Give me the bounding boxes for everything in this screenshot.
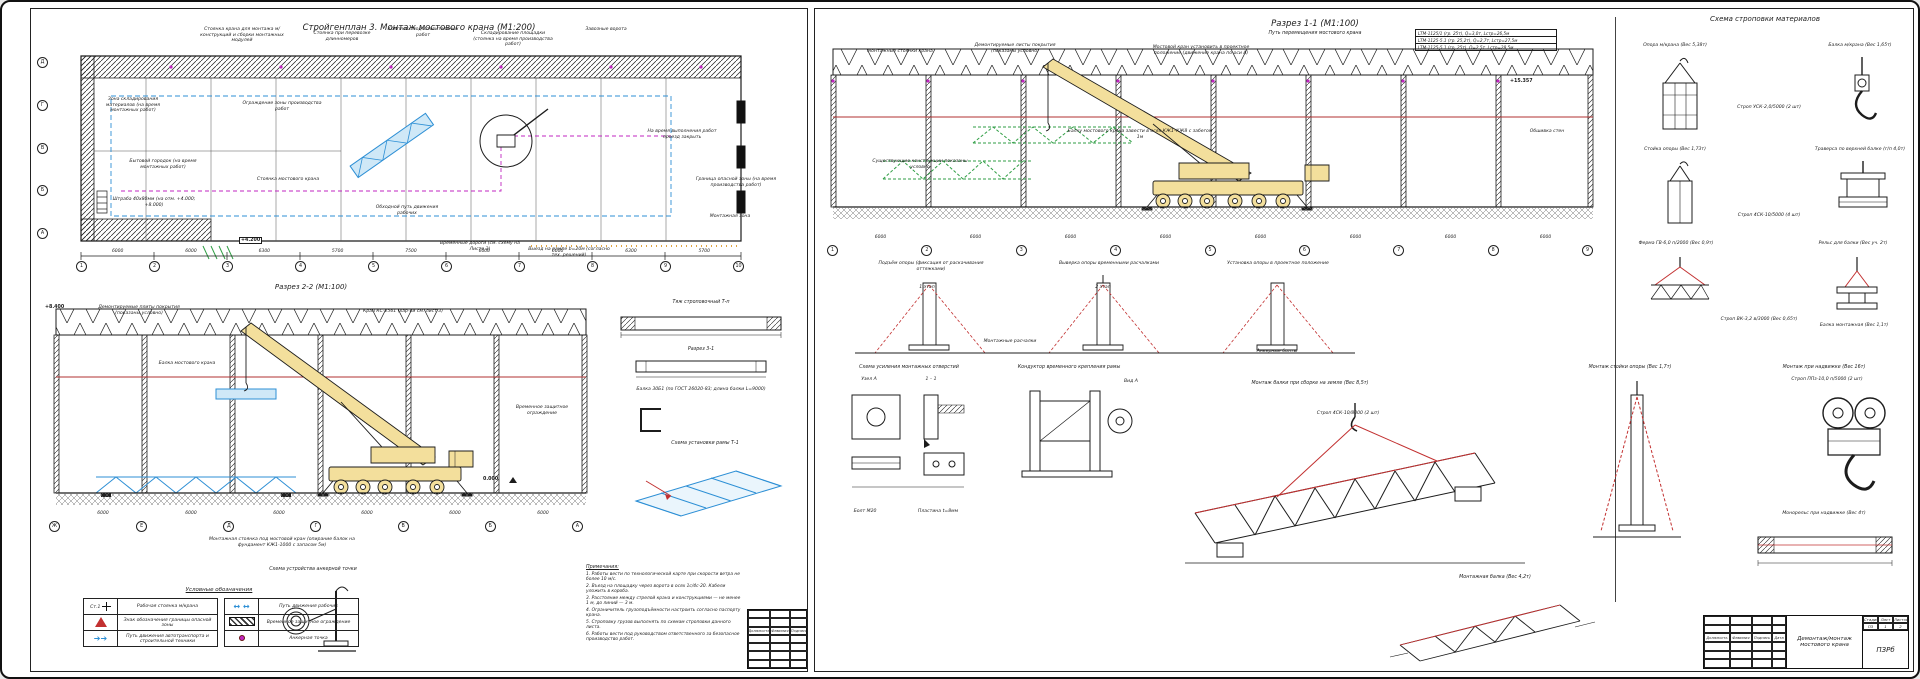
stage-title: Выверка опоры временными расчалками	[1043, 261, 1175, 267]
sheet-right: Разрез 1-1 (М1:100) Путь перемещения мос…	[814, 8, 1914, 672]
plan-grid-numbers: 12345678910	[76, 261, 744, 272]
legend-table: Ст.1 Рабочая стоянка м/крана Знак обозна…	[83, 598, 359, 647]
station-label: Ст.1	[90, 605, 100, 610]
callout: Складирование площадки (стоянка на время…	[471, 31, 555, 48]
sling-post-icon	[1653, 161, 1708, 229]
drawing-canvas: Стройгенплан 3. Монтаж мостового крана (…	[0, 0, 1920, 679]
sling-label: Строп УСК-2,0/5000 (2 шт)	[1733, 105, 1805, 111]
vehicle-route-icon: ➔➔	[94, 634, 107, 643]
detail-title: Монтажная балка (Вес 4,2т)	[1400, 575, 1590, 580]
legend-text: Путь движения рабочих	[259, 599, 359, 615]
right-sheet-subtitle: Путь перемещения мостового крана	[1223, 31, 1407, 36]
legend-right: ↔ ↔ Путь движения рабочих Временное защи…	[224, 598, 359, 647]
legend-text: Временное защитное ограждение	[259, 615, 359, 631]
callout: Демонтируемые листы покрытия (показаны у…	[965, 43, 1065, 54]
sling-label: Траверса по верхней балке (г/п 4,0т)	[1810, 147, 1910, 153]
ground-assembly-truss	[1155, 395, 1555, 575]
callout: Монтажная зона	[699, 214, 761, 220]
detail-title: Монтаж балки при сборке на земле (Вес 8,…	[1205, 381, 1415, 386]
beam-detail-2	[616, 356, 786, 382]
danger-sign-icon	[95, 617, 107, 627]
section-dimensions: 600060006000600060006000	[59, 511, 587, 516]
callout: Стоянка крана для монтажа м/конструкций …	[196, 27, 288, 44]
notes-list: 1. Работы вести по технологической карте…	[586, 572, 744, 643]
section-title: Разрез 2-2 (М1:100)	[201, 283, 421, 291]
stage-label: 1 этап	[907, 285, 947, 291]
section-2-2-drawing	[41, 297, 601, 509]
detail-title: Монтаж при надвижке (Вес 16т)	[1753, 365, 1895, 370]
callout: Мостовой кран установить в проектное пол…	[1145, 45, 1257, 56]
callout: Зона складирования материалов (на время …	[97, 97, 169, 114]
legend-text: Путь движения автотранспорта и строитель…	[118, 631, 218, 647]
legend-text: Рабочая стоянка м/крана	[118, 599, 218, 615]
elevation-mark: +8.400	[45, 305, 64, 310]
callout: Ограждение зоны производства работ	[241, 101, 323, 112]
stage-title: Подъём опоры (фиксация от раскачивания о…	[870, 261, 992, 272]
callout: Балку мостового крана завести в осях КЖ1…	[1065, 129, 1215, 140]
pulley-block-detail	[1800, 391, 1910, 501]
callout: Кран КС-2561 (хар-ки см. лист 3)	[361, 309, 445, 315]
callout: Монтажные стоянки крана	[855, 49, 945, 55]
detail-label: 1 – 1	[913, 377, 949, 383]
callout: Монтажная стоянка под мостовой кран (опи…	[201, 537, 363, 548]
stage-table: Стадия Лист Листов ПЗ 1 2 ПЗРб	[1862, 616, 1908, 668]
callout: Демонтируемые плиты покрытия (показаны у…	[93, 305, 185, 316]
callout: Балка мостового крана	[151, 361, 223, 367]
legend-title: Условные обозначения	[83, 587, 355, 593]
callout: Обшивка стен	[1515, 129, 1579, 135]
section-dimensions: 60006000600060006000600060006000	[833, 235, 1593, 240]
project-name: Демонтаж/монтаж мостового крана	[1786, 616, 1862, 668]
callout: Комплекс подготовительных работ	[386, 27, 460, 38]
sling-label: Стойка опоры (Вес 1,73т)	[1627, 147, 1723, 153]
detail-note: Балка 30Б1 (по ГОСТ 26020-83; длина балк…	[616, 387, 786, 393]
beam-detail-1	[616, 309, 786, 339]
detail-label: Строп ППз-10,0 п/5000 (2 шт)	[1763, 377, 1891, 383]
crane-hook-icon	[1837, 57, 1887, 135]
legend-text: Знак обозначения границы опасной зоны	[118, 615, 218, 631]
left-title-block: ДолжностьФамилияПодпись	[747, 609, 807, 669]
sling-label: Балка м/крана (Вес 1,65т)	[1810, 43, 1910, 49]
sling-label: Балка монтажная (Вес 1,1т)	[1807, 323, 1901, 329]
anchor-scheme-title: Схема устройства анкерной точки	[243, 567, 383, 572]
stage-label: 2 этап	[1083, 285, 1123, 291]
sling-label: Опора м/крана (Вес 5,38т)	[1627, 43, 1723, 49]
document-code: ПЗРб	[1863, 630, 1908, 668]
conductor-detail	[1010, 381, 1140, 491]
small-truss-isometric	[1380, 587, 1610, 667]
plan-dimensions: 600060006300570075006000600063005700	[81, 249, 741, 254]
detail-title: Разрез 3-1	[616, 347, 786, 352]
detail-label: Монорельс при надвижке (Вес 4т)	[1743, 511, 1905, 517]
elevation-mark: +4.200	[239, 237, 262, 244]
sling-label: Строп 4СК-10/5000 (4 шт)	[1733, 213, 1805, 219]
callout: Существующие конструкции показаны условн…	[870, 159, 970, 170]
monorail-beam-detail	[1750, 523, 1900, 578]
detail-title: Схема установки рамы Т-1	[619, 441, 791, 446]
sling-label: Строп ВК-3,2 в/3000 (Вес 0,65т)	[1717, 317, 1801, 323]
anchor-point-icon	[239, 635, 245, 641]
right-title-block: ДолжностьФамилияПодписьДата Демонтаж/мон…	[1703, 615, 1909, 669]
frame-isometric	[616, 451, 791, 521]
detail-title: Схема усиления монтажных отверстий	[833, 365, 985, 370]
callout: На время выполнения работ проезд закрыть	[641, 129, 723, 140]
callout: Обходной путь движения рабочих	[366, 205, 448, 216]
callout: Граница опасной зоны (на время производс…	[693, 177, 779, 188]
callout: Временное защитное ограждение	[501, 405, 583, 416]
worker-route-icon: ↔ ↔	[233, 602, 249, 611]
section-grid-letters: ЖЕДГВБА	[49, 521, 583, 532]
elevation-mark: 0.000	[483, 477, 498, 482]
callout: Стоянка мостового крана	[253, 177, 323, 183]
detail-title: Кондуктор временного крепления рамы	[993, 365, 1145, 370]
callout: Завозные ворота	[576, 27, 636, 33]
sling-label: Ферма ГВ-6,0 п/2000 (Вес 0,9т)	[1625, 241, 1727, 247]
detail-label: Пластина t=8мм	[907, 509, 969, 515]
detail-label: Болт М20	[839, 509, 891, 515]
notes-title: Примечания:	[586, 565, 744, 571]
stage-label: Анкерные болты	[1245, 349, 1309, 355]
stage-label: Монтажные расчалки	[975, 339, 1045, 345]
channel-section	[631, 405, 671, 435]
right-sheet-title: Разрез 1-1 (М1:100)	[1215, 19, 1415, 29]
crane-station-icon	[102, 602, 111, 611]
detail-title: Тяж строповочный Т-п	[616, 300, 786, 305]
hole-reinforcement-detail	[840, 387, 980, 505]
sling-column-icon	[1653, 57, 1708, 135]
sling-label: Рельс для балки (Вес уч. 2т)	[1800, 241, 1906, 247]
rail-clamp-icon	[1827, 257, 1887, 313]
sling-panel-title: Схема строповки материалов	[1623, 15, 1907, 23]
traverse-icon	[1833, 161, 1893, 223]
signature-table: ДолжностьФамилияПодпись	[748, 610, 806, 668]
section-grid-numbers: 123456789	[827, 245, 1593, 256]
sling-truss-icon	[1643, 257, 1717, 313]
signature-table: ДолжностьФамилияПодписьДата	[1704, 616, 1786, 668]
detail-label: Узел А	[851, 377, 887, 383]
fence-icon	[229, 617, 255, 626]
detail-title: Монтаж стойки опоры (Вес 1,7т)	[1567, 365, 1693, 370]
callout: Штраба 40х80мм (на отм. +4.000; +8.000)	[111, 197, 197, 208]
plan-grid-letters: ДГВБА	[37, 57, 48, 239]
callout: Стоянка при перевозке длинномеров	[306, 31, 378, 42]
sheet-left: Стройгенплан 3. Монтаж мостового крана (…	[30, 8, 808, 672]
legend-left: Ст.1 Рабочая стоянка м/крана Знак обозна…	[83, 598, 218, 647]
stand-erection-detail	[1587, 381, 1687, 561]
notes-block: Примечания: 1. Работы вести по технологи…	[586, 565, 744, 644]
stage-title: Установка опоры в проектное положение	[1217, 261, 1339, 267]
callout: Бытовой городок (на время монтажных рабо…	[127, 159, 199, 170]
legend-text: Анкерная точка	[259, 631, 359, 647]
